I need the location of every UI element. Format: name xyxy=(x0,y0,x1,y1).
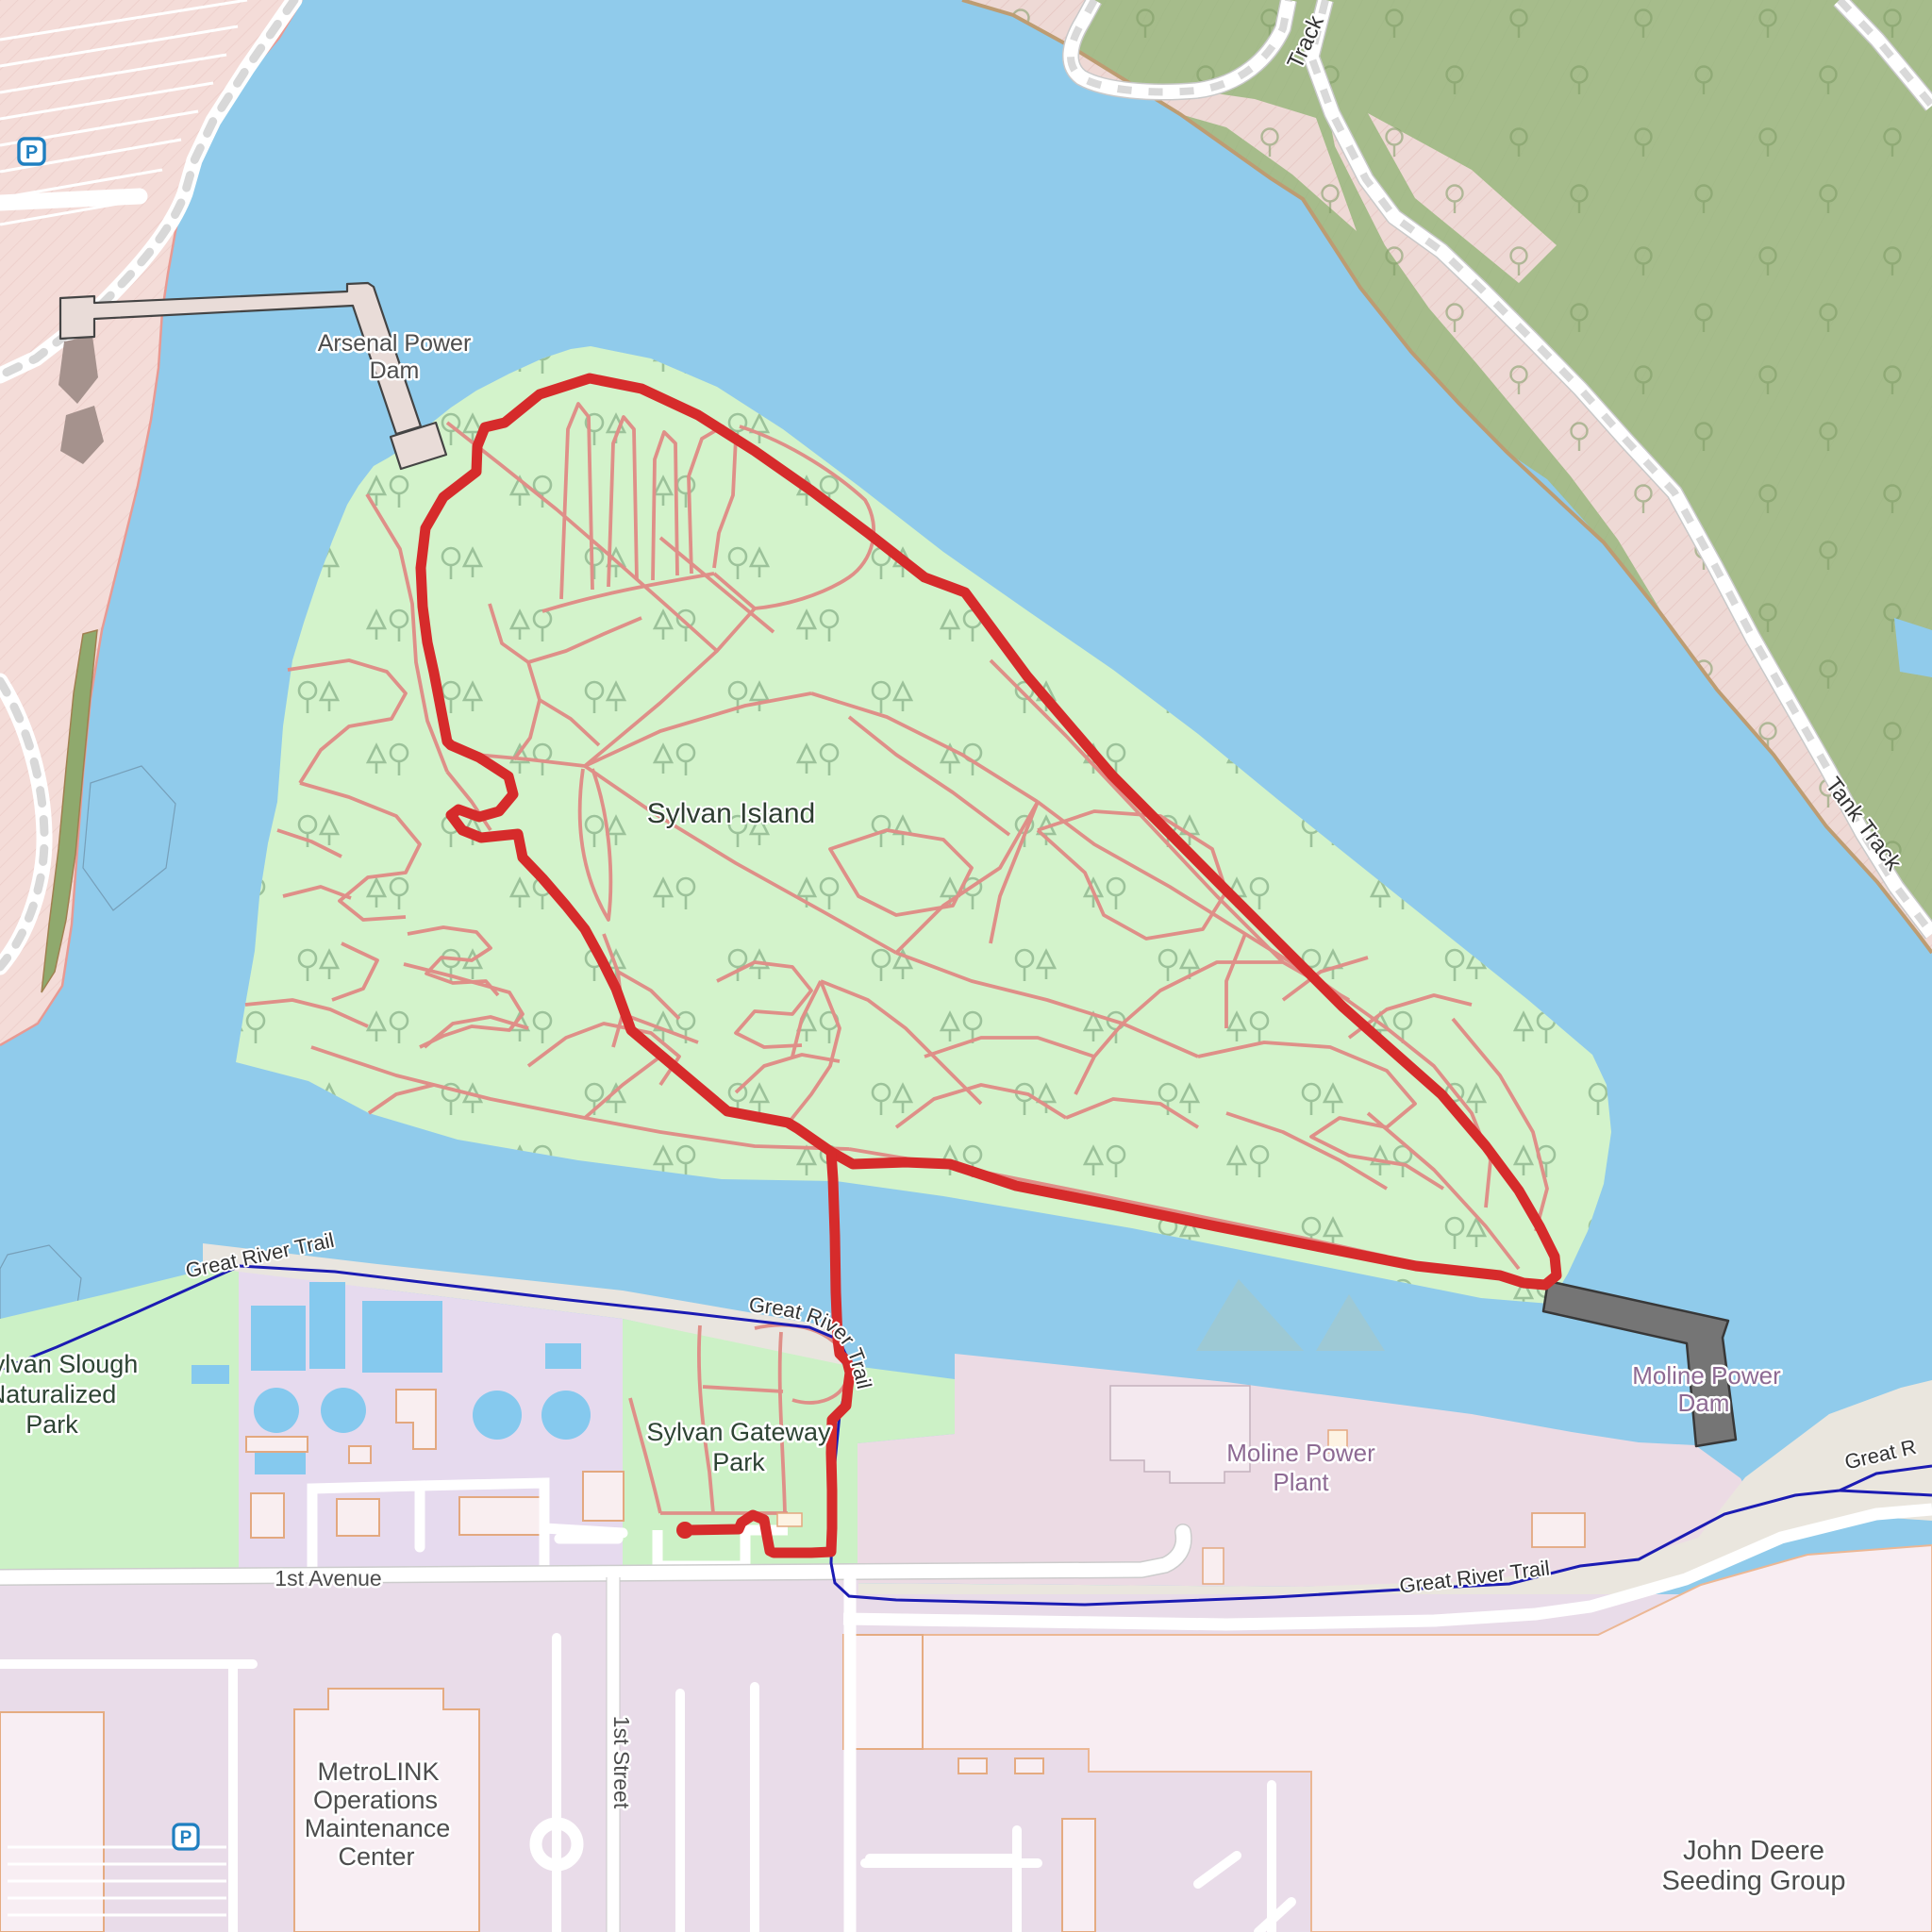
svg-text:Moline Power: Moline Power xyxy=(1632,1361,1781,1390)
svg-text:Center: Center xyxy=(338,1842,414,1871)
svg-text:1st Avenue: 1st Avenue xyxy=(275,1566,381,1591)
svg-text:Seeding Group: Seeding Group xyxy=(1661,1866,1845,1896)
svg-text:Dam: Dam xyxy=(370,358,420,384)
svg-text:Park: Park xyxy=(25,1410,78,1439)
svg-text:Naturalized: Naturalized xyxy=(0,1380,116,1408)
svg-text:Moline Power: Moline Power xyxy=(1226,1439,1375,1467)
svg-text:Sylvan Gateway: Sylvan Gateway xyxy=(646,1418,831,1446)
svg-text:P: P xyxy=(180,1828,192,1848)
svg-text:John Deere: John Deere xyxy=(1683,1836,1824,1866)
svg-text:Dam: Dam xyxy=(1678,1389,1730,1417)
svg-text:Sylvan Slough: Sylvan Slough xyxy=(0,1350,138,1378)
svg-text:Operations: Operations xyxy=(313,1786,438,1814)
svg-text:Plant: Plant xyxy=(1273,1468,1329,1496)
svg-text:1st Street: 1st Street xyxy=(609,1716,634,1809)
svg-text:Park: Park xyxy=(712,1448,765,1476)
svg-text:Maintenance: Maintenance xyxy=(305,1814,451,1842)
svg-text:P: P xyxy=(25,142,38,163)
svg-text:Arsenal Power: Arsenal Power xyxy=(318,330,472,357)
svg-text:MetroLINK: MetroLINK xyxy=(317,1757,439,1786)
svg-text:Sylvan Island: Sylvan Island xyxy=(647,798,815,829)
